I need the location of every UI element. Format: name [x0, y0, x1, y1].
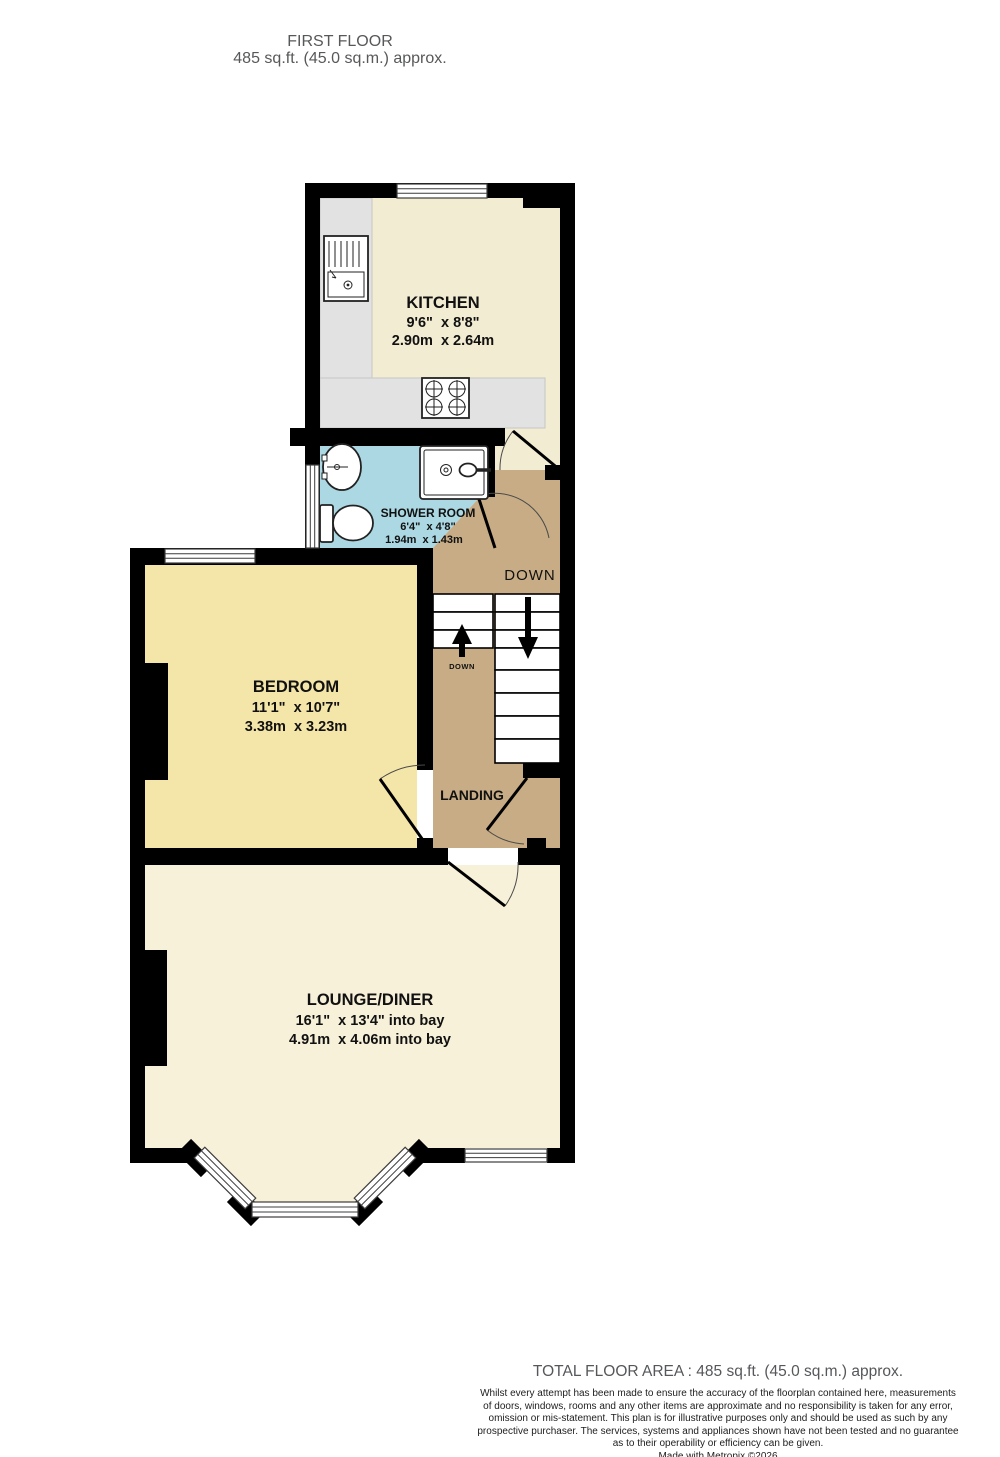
floor-plan: DOWN — [0, 0, 1000, 1457]
footer-block: TOTAL FLOOR AREA : 485 sq.ft. (45.0 sq.m… — [468, 1363, 968, 1457]
stair-tread — [495, 693, 560, 716]
stairs-down-small-label: DOWN — [449, 662, 475, 671]
disclaimer-line: omission or mis-statement. This plan is … — [468, 1413, 968, 1426]
bedroom-label: BEDROOM — [253, 678, 339, 696]
wall — [527, 838, 546, 850]
disclaimer-line: of doors, windows, rooms and any other i… — [468, 1401, 968, 1414]
wall — [523, 763, 560, 778]
kitchen-dim-metric: 2.90m x 2.64m — [392, 333, 494, 349]
stair-tread — [495, 670, 560, 693]
stair-tread — [495, 716, 560, 739]
wall — [560, 183, 575, 1163]
lounge-label: LOUNGE/DINER — [307, 991, 434, 1009]
shower-room-dim-metric: 1.94m x 1.43m — [385, 534, 463, 546]
disclaimer-line: prospective purchaser. The services, sys… — [468, 1426, 968, 1439]
bedroom-dim-metric: 3.38m x 3.23m — [245, 719, 347, 735]
toilet-icon — [320, 505, 373, 542]
chimney-breast — [145, 663, 168, 780]
bay-window-front — [252, 1202, 358, 1217]
stairs-up-arrow-shaft — [459, 643, 465, 657]
wall — [518, 848, 560, 865]
wall — [130, 848, 448, 865]
chimney-breast — [145, 950, 167, 1066]
shower-room-window — [306, 465, 319, 548]
shower-enclosure-icon — [420, 446, 491, 499]
bedroom-window — [165, 549, 255, 563]
stair-tread — [495, 739, 560, 763]
stairs-down-arrow-shaft — [525, 597, 531, 638]
wall — [417, 548, 433, 770]
stair-tread — [433, 594, 493, 612]
landing-label: LANDING — [440, 787, 504, 803]
disclaimer-line: Whilst every attempt has been made to en… — [468, 1388, 968, 1401]
total-floor-area: TOTAL FLOOR AREA : 485 sq.ft. (45.0 sq.m… — [468, 1363, 968, 1381]
kitchen-window — [397, 184, 487, 198]
kitchen-dim-imperial: 9'6" x 8'8" — [406, 315, 479, 331]
lounge-dim-metric: 4.91m x 4.06m into bay — [289, 1032, 451, 1048]
kitchen-label: KITCHEN — [406, 294, 479, 312]
stairs-down-label: DOWN — [504, 567, 556, 584]
bedroom-dim-imperial: 11'1" x 10'7" — [252, 700, 340, 716]
shower-room-dim-imperial: 6'4" x 4'8" — [400, 521, 455, 533]
hob-icon — [422, 378, 469, 418]
disclaimer-line: as to their operability or efficiency ca… — [468, 1438, 968, 1451]
wall — [547, 1148, 575, 1163]
lounge-window — [465, 1149, 547, 1162]
wall — [305, 548, 433, 565]
shower-room-label: SHOWER ROOM — [381, 506, 476, 520]
metropix-credit: Made with Metropix ©2026 — [468, 1451, 968, 1457]
wall — [290, 428, 505, 446]
basin-icon — [322, 444, 361, 490]
floorplan-page: FIRST FLOOR 485 sq.ft. (45.0 sq.m.) appr… — [0, 0, 1000, 1457]
kitchen-sink-icon — [324, 236, 368, 301]
lounge-dim-imperial: 16'1" x 13'4" into bay — [296, 1013, 445, 1029]
